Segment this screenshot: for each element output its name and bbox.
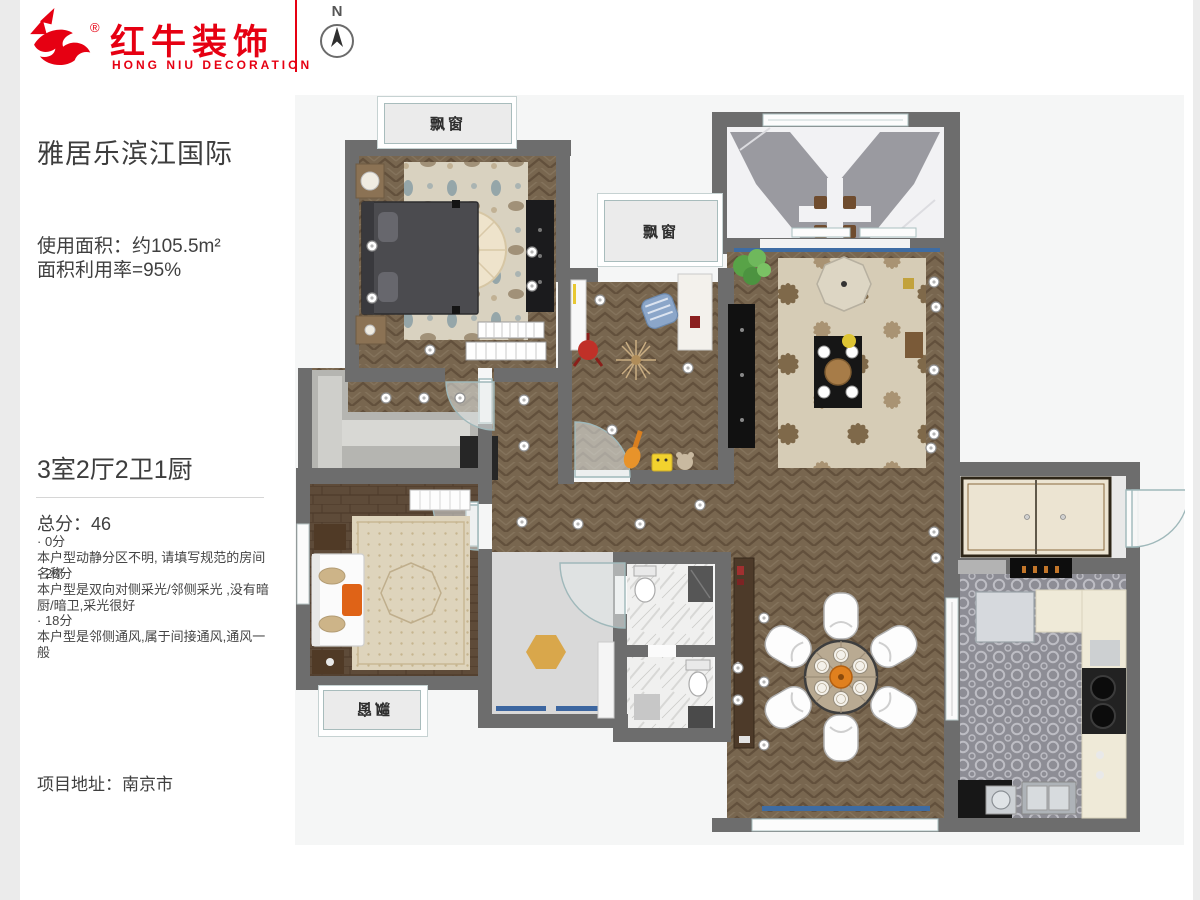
area-utilization: 面积利用率=95% <box>37 255 181 282</box>
score-item-1-desc: 本户型是双向对侧采光/邻侧采光 ,没有暗厨/暗卫,采光很好 <box>37 582 269 614</box>
score-item-1-score: · 28分 <box>37 566 269 582</box>
floorplan-rendering <box>295 95 1185 845</box>
bull-icon <box>28 6 106 68</box>
compass-north-label: N <box>314 4 360 20</box>
page-left-margin <box>0 0 20 900</box>
usage-area: 使用面积：约105.5m² <box>37 231 221 258</box>
bay-window-label-text: 飘窗 <box>604 200 718 262</box>
score-item-0-score: · 0分 <box>37 534 269 550</box>
project-name: 雅居乐滨江国际 <box>37 132 233 171</box>
bay-window-label-bottom: 飘窗 <box>318 685 428 737</box>
score-item-2-desc: 本户型是邻侧通风,属于间接通风,通风一般 <box>37 629 269 661</box>
brand-name-en: HONG NIU DECORATION <box>112 58 312 72</box>
total-score: 总分：46 <box>37 510 111 536</box>
bay-window-label-top: 飘窗 <box>377 96 517 149</box>
bay-window-label-text: 飘窗 <box>384 103 512 144</box>
project-address: 项目地址：南京市 <box>37 770 173 795</box>
bay-window-label-text: 飘窗 <box>323 690 421 730</box>
bay-window-label-middle: 飘窗 <box>597 193 723 267</box>
score-item-2-score: · 18分 <box>37 613 269 629</box>
sidebar-divider <box>36 497 264 498</box>
compass-icon <box>316 20 358 62</box>
registered-mark: ® <box>90 20 100 35</box>
page-right-margin <box>1193 0 1200 900</box>
rooms-summary: 3室2厅2卫1厨 <box>37 450 193 486</box>
page: ® 红牛装饰 HONG NIU DECORATION N 雅居乐滨江国际 使用面… <box>0 0 1200 900</box>
north-compass: N <box>314 4 360 70</box>
brand-logo: ® 红牛装饰 HONG NIU DECORATION <box>28 6 294 72</box>
